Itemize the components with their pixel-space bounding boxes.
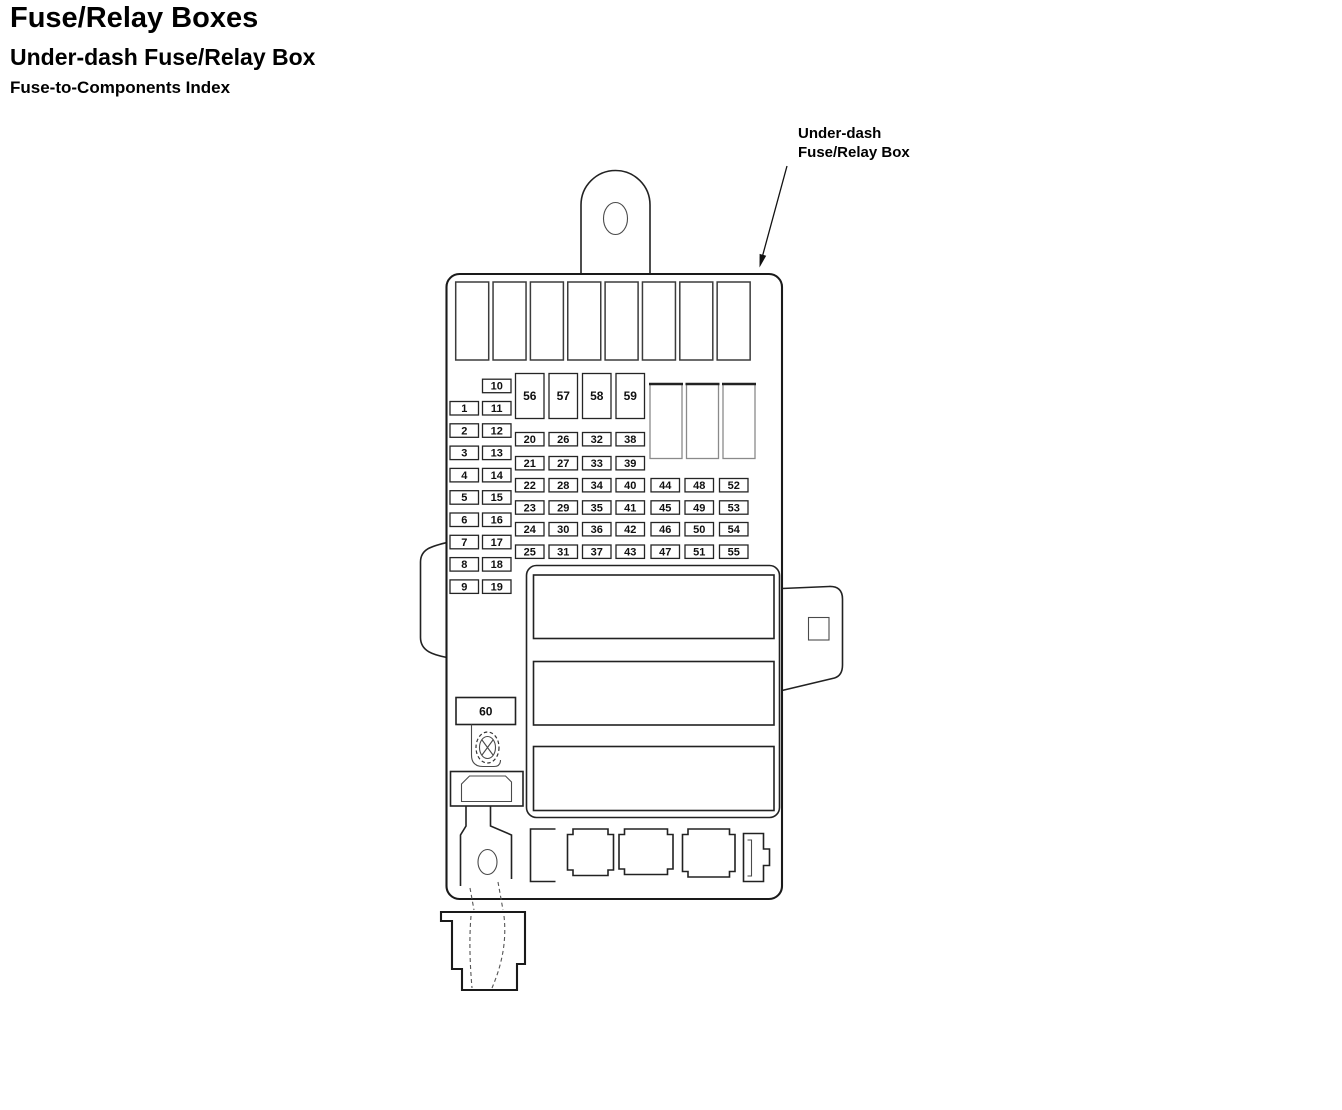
fuse-number: 19 — [491, 581, 503, 593]
bracket-hole-icon — [478, 850, 497, 875]
mounting-tab-top — [581, 171, 650, 275]
fuse-number: 33 — [591, 458, 603, 470]
fuse-number: 20 — [524, 434, 536, 446]
fuse-number: 29 — [557, 502, 569, 514]
fuse-cell: 43 — [616, 545, 645, 558]
fuse-number: 3 — [461, 448, 467, 460]
fuse-number: 35 — [591, 502, 603, 514]
relay-slot — [493, 282, 526, 360]
fuse-cell: 11 — [483, 402, 512, 416]
fuse-cell: 40 — [616, 479, 645, 492]
center-window-2 — [534, 662, 775, 726]
fuse-number: 24 — [524, 524, 537, 536]
fuse-cell: 27 — [549, 457, 578, 470]
fuse-cell: 30 — [549, 523, 578, 536]
circle-x-symbol — [476, 732, 499, 763]
fuse-cell: 36 — [583, 523, 612, 536]
bracket-foot-outline — [441, 912, 525, 990]
service-manual-page: Fuse/Relay Boxes Under-dash Fuse/Relay B… — [0, 0, 1342, 1110]
fuse-number: 34 — [591, 480, 604, 492]
fuse-number: 25 — [524, 546, 536, 558]
fuse-cell: 47 — [651, 545, 680, 558]
fuse-number: 8 — [461, 559, 467, 571]
fuse-number: 16 — [491, 515, 503, 527]
fuse-number: 30 — [557, 524, 569, 536]
fuse-cell: 49 — [685, 501, 714, 514]
fuse-cell: 3 — [450, 446, 479, 460]
fuse-number: 44 — [659, 480, 672, 492]
fuse-cell: 37 — [583, 545, 612, 558]
bottom-connector-5 — [744, 834, 770, 882]
fuse-cell: 21 — [516, 457, 545, 470]
right-relay-slots — [649, 384, 756, 459]
bracket-strip-left — [461, 806, 467, 886]
fuse-cell: 42 — [616, 523, 645, 536]
fuse-cell: 7 — [450, 535, 479, 549]
fuse-cell: 13 — [483, 446, 512, 460]
fuse-cell: 50 — [685, 523, 714, 536]
fuse-cell: 8 — [450, 558, 479, 572]
top-relay-slots — [456, 282, 750, 360]
fuse-number: 55 — [728, 546, 740, 558]
fuse-cell: 25 — [516, 545, 545, 558]
fuse-number: 17 — [491, 537, 503, 549]
fuse-cell: 41 — [616, 501, 645, 514]
fuse-number: 27 — [557, 458, 569, 470]
fuse-cell: 46 — [651, 523, 680, 536]
fuse-number: 7 — [461, 537, 467, 549]
fuse-60-label: 60 — [479, 705, 493, 719]
fuse-cell: 56 — [516, 374, 545, 419]
fuse-cell: 1 — [450, 402, 479, 416]
mounting-hole-icon — [604, 203, 628, 235]
fuse-number: 32 — [591, 434, 603, 446]
bottom-connector-5-inner — [748, 840, 752, 876]
relay-slot — [723, 384, 755, 459]
fuse-column-outer: 123456789 — [450, 402, 479, 594]
fuse-cell: 32 — [583, 433, 612, 446]
fuse-cell: 33 — [583, 457, 612, 470]
fuse-number: 9 — [461, 581, 467, 593]
lower-left-connector-inner — [462, 776, 512, 802]
fuse-number: 23 — [524, 502, 536, 514]
fuse-number: 57 — [557, 389, 571, 403]
right-mounting-tab — [782, 586, 843, 690]
fuse-column-inner: 10111213141516171819 — [483, 379, 512, 593]
fuse-number: 49 — [693, 502, 705, 514]
bottom-connector-4 — [683, 829, 736, 877]
fuse-number: 48 — [693, 480, 705, 492]
large-fuse-slots: 56575859 — [516, 374, 645, 419]
fuse-number: 36 — [591, 524, 603, 536]
fuse-cell: 26 — [549, 433, 578, 446]
fuse-cell: 54 — [720, 523, 749, 536]
fuse-cell: 52 — [720, 479, 749, 492]
fuse-number: 15 — [491, 492, 503, 504]
fuse-number: 10 — [491, 381, 503, 393]
fuse-cell: 22 — [516, 479, 545, 492]
fuse-number: 53 — [728, 502, 740, 514]
bottom-connector-1 — [531, 829, 556, 882]
fuse-number: 59 — [624, 389, 638, 403]
fuse-number: 41 — [624, 502, 636, 514]
fuse-number: 42 — [624, 524, 636, 536]
fuse-number: 31 — [557, 546, 569, 558]
fuse-number: 26 — [557, 434, 569, 446]
bottom-connector-2 — [568, 829, 614, 876]
fuse-cell: 44 — [651, 479, 680, 492]
center-block-outline — [527, 566, 780, 818]
fuse-number: 14 — [491, 470, 504, 482]
fuse-cell: 17 — [483, 535, 512, 549]
fuse-number: 6 — [461, 515, 467, 527]
fuse-number: 38 — [624, 434, 636, 446]
relay-slot — [717, 282, 750, 360]
fuse-number: 5 — [461, 492, 467, 504]
fuse-cell: 12 — [483, 424, 512, 438]
fuse-cell: 58 — [583, 374, 612, 419]
relay-slot — [456, 282, 489, 360]
fuse-number: 28 — [557, 480, 569, 492]
bottom-connector-3 — [619, 829, 673, 875]
fuse-number: 47 — [659, 546, 671, 558]
fuse-cell: 48 — [685, 479, 714, 492]
fuse-number: 45 — [659, 502, 671, 514]
fuse-number: 1 — [461, 403, 467, 415]
fuse-cell: 28 — [549, 479, 578, 492]
fuse-number: 4 — [461, 470, 468, 482]
fuse-cell: 59 — [616, 374, 645, 419]
fuse-number: 58 — [590, 389, 604, 403]
fuse-cell: 51 — [685, 545, 714, 558]
fuse-cell: 15 — [483, 491, 512, 505]
fuse-cell: 31 — [549, 545, 578, 558]
fuse-number: 13 — [491, 448, 503, 460]
fuse-cell: 20 — [516, 433, 545, 446]
relay-slot — [680, 282, 713, 360]
fuse-number: 46 — [659, 524, 671, 536]
fuse-cell: 6 — [450, 513, 479, 527]
bracket-hidden-edge-4 — [470, 916, 472, 988]
fuse-number: 21 — [524, 458, 536, 470]
fuse-number: 12 — [491, 425, 503, 437]
fuse-cell: 24 — [516, 523, 545, 536]
fuse-cell: 14 — [483, 468, 512, 482]
bracket-strip-right — [491, 806, 512, 879]
fuse-cell: 23 — [516, 501, 545, 514]
fuse-cell: 18 — [483, 558, 512, 572]
relay-slot — [605, 282, 638, 360]
bracket-hidden-edge-2 — [498, 882, 503, 910]
fuse-cell: 4 — [450, 468, 479, 482]
fuse-cell: 57 — [549, 374, 578, 419]
fuse-cell: 45 — [651, 501, 680, 514]
fuse-cell-60: 60 — [456, 698, 516, 725]
bracket-hidden-edge-3 — [492, 916, 505, 988]
relay-slot — [568, 282, 601, 360]
fuse-number: 56 — [523, 389, 537, 403]
fuse-box-diagram: 123456789 10111213141516171819 56575859 … — [0, 0, 1342, 1110]
relay-slot — [642, 282, 675, 360]
fuse-cell: 34 — [583, 479, 612, 492]
fuse-cell: 19 — [483, 580, 512, 594]
relay-slot — [687, 384, 719, 459]
fuse-number: 39 — [624, 458, 636, 470]
fuse-number: 50 — [693, 524, 705, 536]
fuse-cell: 55 — [720, 545, 749, 558]
fuse-number: 51 — [693, 546, 705, 558]
fuse-cell: 35 — [583, 501, 612, 514]
fuse-cell: 53 — [720, 501, 749, 514]
fuse-cell: 5 — [450, 491, 479, 505]
relay-slot — [530, 282, 563, 360]
center-window-1 — [534, 575, 775, 639]
fuse-cell: 16 — [483, 513, 512, 527]
fuse-cell: 38 — [616, 433, 645, 446]
fuse-cell: 10 — [483, 379, 512, 393]
fuse-number: 22 — [524, 480, 536, 492]
callout-arrow-head — [760, 254, 767, 268]
fuse-number: 52 — [728, 480, 740, 492]
fuse-number: 18 — [491, 559, 503, 571]
fuse-number: 40 — [624, 480, 636, 492]
left-mounting-tab — [421, 543, 448, 658]
center-window-3 — [534, 747, 775, 811]
relay-slot — [650, 384, 682, 459]
fuse-number: 43 — [624, 546, 636, 558]
circle-x-cross — [482, 740, 493, 755]
fuse-cell: 29 — [549, 501, 578, 514]
fuse-cell: 39 — [616, 457, 645, 470]
fuse-number: 37 — [591, 546, 603, 558]
fuse-cell: 9 — [450, 580, 479, 594]
fuse-number: 54 — [728, 524, 741, 536]
fuse-number: 2 — [461, 425, 467, 437]
fuse-cell: 2 — [450, 424, 479, 438]
fuse-number: 11 — [491, 403, 503, 415]
callout-arrow-line — [763, 166, 788, 256]
